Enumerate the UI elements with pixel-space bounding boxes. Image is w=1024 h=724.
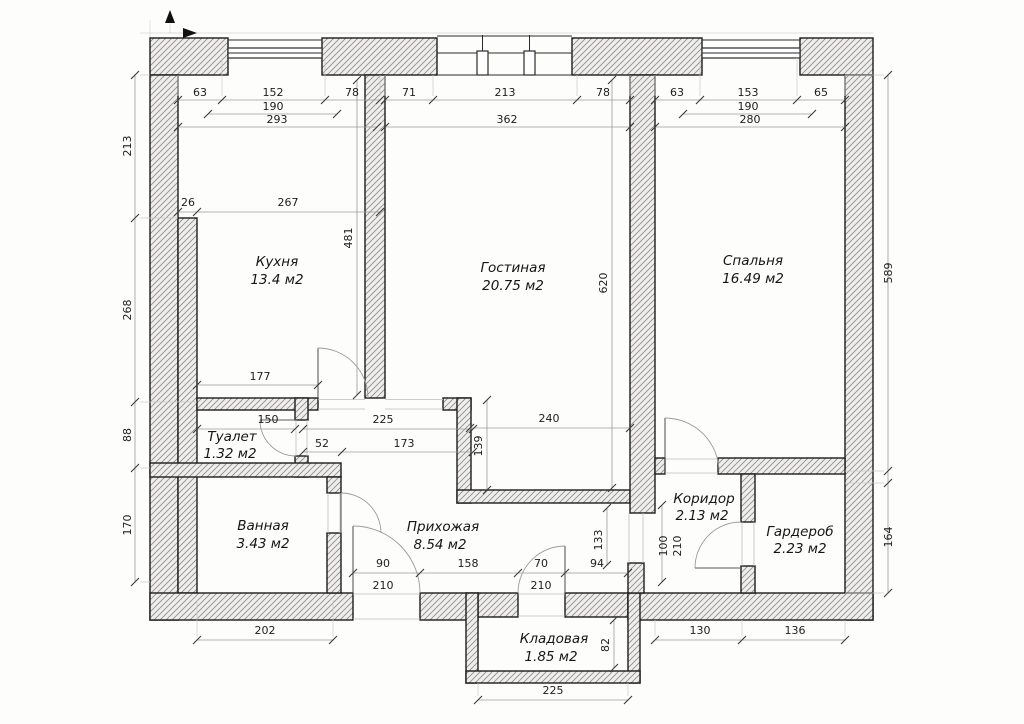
bedroom-door bbox=[665, 418, 719, 472]
dim-bottom-a: 202 bbox=[255, 624, 276, 637]
north-arrow bbox=[140, 10, 873, 46]
dim-bedroom-top-frame: 190 bbox=[738, 100, 759, 113]
dim-mid-a: 52 bbox=[315, 437, 329, 450]
dim-right-b: 164 bbox=[882, 527, 895, 548]
dim-hall-b: 94 bbox=[590, 557, 604, 570]
dim-left-a: 213 bbox=[121, 136, 134, 157]
room-area-bath: 3.43 м2 bbox=[236, 536, 289, 552]
dim-living-top-b: 213 bbox=[495, 86, 516, 99]
dim-right-a: 589 bbox=[882, 263, 895, 284]
kitchen-window bbox=[228, 40, 322, 58]
dim-living-top-a: 71 bbox=[402, 86, 416, 99]
room-label-bedroom: Спальня bbox=[723, 253, 783, 269]
floor-plan-svg: 63 152 78 190 293 71 213 78 362 63 153 6… bbox=[0, 0, 1024, 724]
dim-mid-b: 173 bbox=[394, 437, 415, 450]
dim-hall-n: 133 bbox=[592, 530, 605, 551]
dim-living-in-h: 620 bbox=[597, 273, 610, 294]
dim-living-top-total: 362 bbox=[497, 113, 518, 126]
room-label-living: Гостиная bbox=[480, 260, 545, 276]
walls bbox=[150, 38, 873, 683]
room-label-hall: Прихожая bbox=[407, 519, 479, 535]
room-area-corridor: 2.13 м2 bbox=[675, 508, 728, 524]
dim-kitchen-top-a: 63 bbox=[193, 86, 207, 99]
room-area-hall: 8.54 м2 bbox=[413, 537, 466, 553]
dim-kitchen-in-w: 177 bbox=[250, 370, 271, 383]
floor-plan: 63 152 78 190 293 71 213 78 362 63 153 6… bbox=[0, 0, 1024, 724]
room-area-pantry: 1.85 м2 bbox=[524, 649, 577, 665]
dim-kitchen-in-b: 267 bbox=[278, 196, 299, 209]
dim-kitchen-top-b: 152 bbox=[263, 86, 284, 99]
dim-pantry-w: 225 bbox=[543, 684, 564, 697]
dim-toilet-w: 150 bbox=[258, 413, 279, 426]
dim-living-in-w: 240 bbox=[539, 412, 560, 425]
room-label-kitchen: Кухня bbox=[256, 254, 299, 270]
balcony-door-window bbox=[437, 35, 572, 75]
room-area-living: 20.75 м2 bbox=[482, 278, 544, 294]
dim-bedroom-top-a: 63 bbox=[670, 86, 684, 99]
dim-pantry-h: 82 bbox=[599, 638, 612, 652]
dim-kitchen-top-c: 78 bbox=[345, 86, 359, 99]
dim-bedroom-top-c: 65 bbox=[814, 86, 828, 99]
dim-kitchen-in-h: 481 bbox=[342, 228, 355, 249]
dim-bottom-c: 136 bbox=[785, 624, 806, 637]
dim-kitchen-top-frame: 190 bbox=[263, 100, 284, 113]
wardrobe-door bbox=[695, 522, 741, 568]
dim-left-d: 170 bbox=[121, 515, 134, 536]
dim-corridor-b: 210 bbox=[671, 536, 684, 557]
room-label-pantry: Кладовая bbox=[520, 631, 588, 647]
bedroom-window bbox=[702, 40, 800, 58]
dim-living-in-n: 139 bbox=[472, 436, 485, 457]
dim-left-c: 88 bbox=[121, 428, 134, 442]
room-area-kitchen: 13.4 м2 bbox=[250, 272, 303, 288]
dim-kitchen-top-total: 293 bbox=[267, 113, 288, 126]
dim-hall-a: 158 bbox=[458, 557, 479, 570]
bathroom-door bbox=[341, 493, 381, 533]
dim-entry-door-h: 210 bbox=[373, 579, 394, 592]
dim-kitchen-in-a: 26 bbox=[181, 196, 195, 209]
room-area-bedroom: 16.49 м2 bbox=[722, 271, 784, 287]
dim-left-b: 268 bbox=[121, 300, 134, 321]
kitchen-door bbox=[318, 348, 368, 398]
dim-pantry-door-h: 210 bbox=[531, 579, 552, 592]
dim-pantry-door-w: 70 bbox=[534, 557, 548, 570]
dim-bottom-b: 130 bbox=[690, 624, 711, 637]
room-label-toilet: Туалет bbox=[207, 429, 257, 445]
dim-living-top-c: 78 bbox=[596, 86, 610, 99]
dim-entry-door-w: 90 bbox=[376, 557, 390, 570]
room-label-bath: Ванная bbox=[237, 518, 289, 534]
room-area-wardrobe: 2.23 м2 bbox=[773, 541, 826, 557]
room-label-wardrobe: Гардероб bbox=[766, 524, 833, 540]
dim-bedroom-top-b: 153 bbox=[738, 86, 759, 99]
room-area-toilet: 1.32 м2 bbox=[203, 446, 256, 462]
dim-pass: 225 bbox=[373, 413, 394, 426]
dim-bedroom-top-total: 280 bbox=[740, 113, 761, 126]
room-label-corridor: Коридор bbox=[673, 491, 734, 507]
dim-corridor-a: 100 bbox=[657, 536, 670, 557]
